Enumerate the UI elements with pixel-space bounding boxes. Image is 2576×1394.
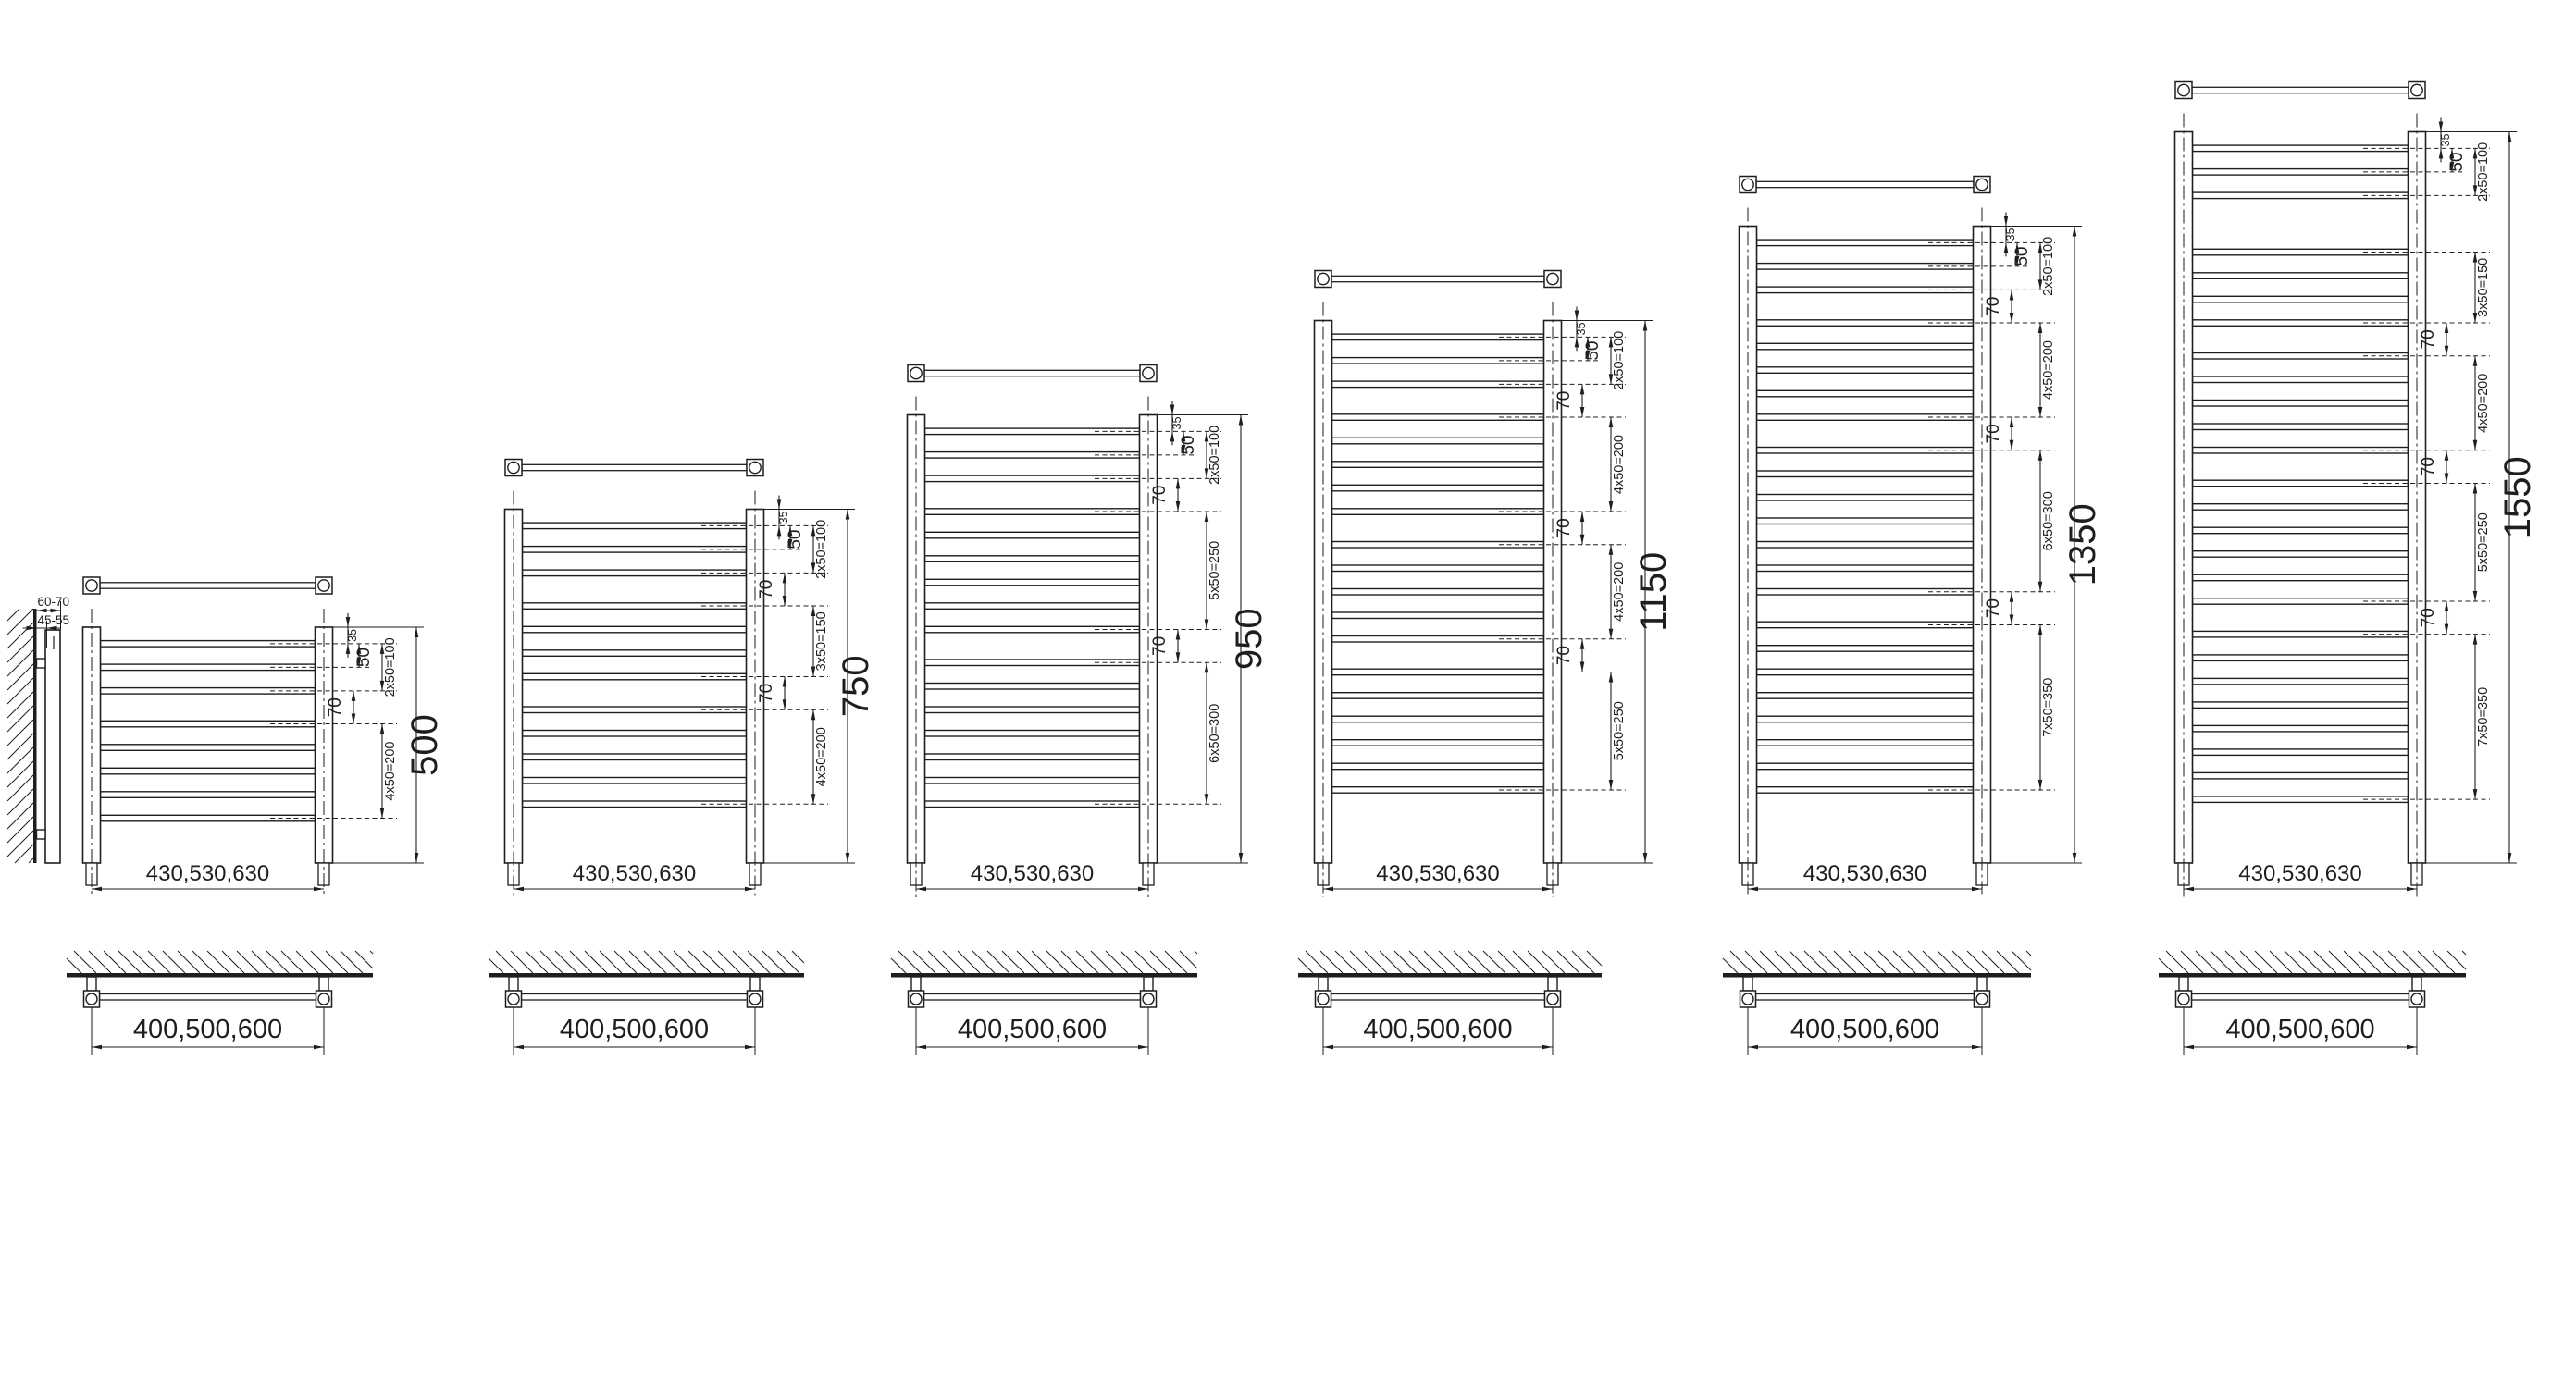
tube	[925, 660, 1140, 666]
tube	[101, 815, 316, 821]
mount-plan-view: 400,500,600	[1723, 951, 2031, 1055]
gap-dimension-label: 70	[757, 580, 776, 599]
top-offset-label: 35	[346, 629, 359, 642]
front-view	[1315, 302, 1562, 898]
tube	[2193, 424, 2409, 430]
width-dimension: 430,530,630	[2184, 861, 2417, 891]
mount-plan-view: 400,500,600	[891, 951, 1197, 1055]
front-view	[908, 397, 1158, 898]
group-dimension-label: 7x50=350	[2476, 687, 2491, 746]
pitch-label: 50	[1179, 436, 1198, 455]
gap-dimension-label: 70	[1554, 518, 1574, 537]
right-bracket-eye	[1547, 273, 1558, 284]
mount-plan-view: 400,500,600	[2159, 951, 2466, 1055]
tube	[925, 801, 1140, 808]
tube	[2193, 192, 2409, 199]
tube	[2193, 169, 2409, 176]
top-offset-label: 35	[2004, 228, 2017, 241]
top-offset-label: 35	[1170, 416, 1183, 429]
group-dimension-label: 4x50=200	[2041, 340, 2056, 400]
right-bracket-eye	[1143, 367, 1154, 378]
wall-side-view: 60-7045-55	[7, 595, 69, 863]
tube	[1757, 471, 1974, 477]
group-dimension-label: 6x50=300	[2041, 491, 2056, 550]
front-view	[2175, 114, 2426, 898]
tube	[2193, 504, 2409, 511]
tube	[523, 754, 747, 760]
wall-to-front-label: 60-70	[38, 595, 70, 609]
tube	[523, 650, 747, 657]
radiator-950: 430,530,63035502x50=100705x50=250706x50=…	[891, 365, 1269, 1055]
overall-height-label: 1350	[2062, 503, 2103, 586]
width-label: 430,530,630	[573, 861, 696, 886]
tube	[1332, 334, 1544, 340]
tube	[1332, 414, 1544, 421]
width-dimension: 430,530,630	[916, 861, 1148, 891]
mount-spacing-label: 400,500,600	[958, 1015, 1107, 1044]
group-dimension-label: 3x50=150	[2476, 258, 2491, 317]
group-dimension-label: 4x50=200	[1612, 562, 1627, 622]
tube	[2193, 320, 2409, 327]
left-bracket-eye	[1318, 273, 1329, 284]
mount-spacing-label: 400,500,600	[133, 1015, 282, 1044]
tube	[1757, 740, 1974, 746]
mount-spacing-label: 400,500,600	[1790, 1015, 1939, 1044]
tube	[1332, 509, 1544, 515]
gap-dimension-label: 70	[2419, 329, 2438, 349]
right-bracket-eye	[2411, 84, 2422, 95]
right-bracket-eye	[318, 580, 329, 591]
tube	[1757, 565, 1974, 572]
tube	[2193, 749, 2409, 756]
radiator-500: 430,530,63035502x50=100704x50=200500400,…	[67, 577, 445, 1055]
group-dimension-label: 5x50=250	[1207, 541, 1222, 600]
width-dimension: 430,530,630	[514, 861, 755, 891]
radiator-side-profile	[45, 630, 60, 863]
tube	[1332, 669, 1544, 675]
gap-dimension-label: 70	[1554, 391, 1574, 411]
tube	[1757, 716, 1974, 722]
tube	[1332, 542, 1544, 549]
tube	[1757, 542, 1974, 549]
width-label: 430,530,630	[971, 861, 1094, 886]
wall-to-rear-label: 45-55	[38, 613, 70, 627]
left-bracket-eye	[910, 367, 922, 378]
tube	[1332, 358, 1544, 364]
tube	[1757, 518, 1974, 524]
tube	[2193, 480, 2409, 487]
right-bracket-eye	[1976, 179, 1988, 190]
tube	[2193, 678, 2409, 685]
height-dimension-chain: 35502x50=100704x50=200500	[270, 613, 445, 863]
mount-plan-view: 400,500,600	[1298, 951, 1602, 1055]
tube	[101, 745, 316, 751]
group-dimension-label: 5x50=250	[1612, 701, 1627, 760]
group-dimension-label: 4x50=200	[2476, 374, 2491, 433]
radiator-1350: 430,530,63035502x50=100704x50=200706x50=…	[1723, 177, 2103, 1055]
tube	[1332, 740, 1544, 746]
group-dimension-label: 6x50=300	[1207, 704, 1222, 763]
group-dimension-label: 2x50=100	[383, 637, 398, 697]
width-label: 430,530,630	[1376, 861, 1499, 886]
mount-plan-view: 400,500,600	[67, 951, 373, 1055]
group-dimension-label: 4x50=200	[1612, 435, 1627, 494]
tube	[2193, 574, 2409, 581]
width-dimension: 430,530,630	[1323, 861, 1553, 891]
width-label: 430,530,630	[2238, 861, 2361, 886]
tube	[2193, 353, 2409, 360]
tube	[2193, 296, 2409, 302]
gap-dimension-label: 70	[2419, 608, 2438, 627]
group-dimension-label: 2x50=100	[814, 520, 829, 579]
tube	[2193, 796, 2409, 803]
tube	[2193, 376, 2409, 383]
group-dimension-label: 7x50=350	[2041, 678, 2056, 737]
top-offset-label: 35	[2439, 133, 2452, 146]
front-view	[1740, 208, 1991, 898]
tube	[1757, 367, 1974, 374]
tube	[925, 452, 1140, 459]
overall-height-label: 1150	[1633, 552, 1674, 632]
top-plan-view	[908, 365, 1157, 382]
gap-dimension-label: 70	[1150, 486, 1170, 505]
right-bracket-eye	[749, 462, 761, 473]
overall-height-label: 950	[1229, 608, 1269, 670]
tube	[1332, 462, 1544, 468]
tube	[1757, 646, 1974, 652]
tube	[101, 641, 316, 648]
tube	[1332, 787, 1544, 794]
left-bracket-eye	[1742, 179, 1753, 190]
gap-dimension-label: 70	[1150, 636, 1170, 656]
tube	[925, 475, 1140, 482]
height-dimension-chain: 35502x50=100704x50=200704x50=200705x50=2…	[1499, 307, 1674, 864]
gap-dimension-label: 70	[2419, 457, 2438, 476]
tube	[925, 509, 1140, 515]
overall-height-label: 1550	[2497, 456, 2538, 538]
tube	[2193, 273, 2409, 279]
gap-dimension-label: 70	[757, 684, 776, 703]
tube	[1757, 693, 1974, 699]
top-plan-view	[1740, 177, 1990, 193]
pitch-label: 50	[786, 530, 805, 549]
top-plan-view	[1315, 271, 1561, 288]
overall-height-label: 500	[404, 714, 445, 776]
group-dimension-label: 5x50=250	[2476, 512, 2491, 572]
radiator-1550: 430,530,63035502x50=1003x50=150704x50=20…	[2159, 82, 2538, 1055]
tube	[2193, 401, 2409, 407]
tube	[925, 778, 1140, 784]
gap-dimension-label: 70	[1984, 297, 2003, 316]
front-view	[505, 491, 764, 898]
pitch-label: 50	[354, 648, 374, 667]
top-plan-view	[2175, 82, 2425, 99]
tube	[101, 688, 316, 695]
group-dimension-label: 4x50=200	[383, 741, 398, 800]
width-label: 430,530,630	[146, 861, 269, 886]
tube	[925, 754, 1140, 760]
tube	[101, 768, 316, 774]
group-dimension-label: 2x50=100	[1207, 426, 1222, 485]
left-bracket-eye	[2178, 84, 2189, 95]
tube	[1332, 693, 1544, 699]
mount-spacing-label: 400,500,600	[560, 1015, 709, 1044]
tube	[2193, 249, 2409, 255]
tube	[1757, 669, 1974, 675]
left-bracket-eye	[86, 580, 97, 591]
top-offset-label: 35	[777, 511, 790, 524]
top-plan-view	[505, 460, 763, 476]
tube	[2193, 702, 2409, 709]
tube	[2193, 655, 2409, 661]
tube	[1332, 636, 1544, 643]
pitch-label: 50	[2012, 247, 2032, 266]
left-bracket-eye	[508, 462, 519, 473]
width-label: 430,530,630	[1803, 861, 1926, 886]
tube	[2193, 551, 2409, 558]
tube	[1332, 716, 1544, 722]
tube	[2193, 527, 2409, 534]
tube	[1757, 495, 1974, 501]
overall-height-label: 750	[836, 655, 876, 717]
tube	[1757, 343, 1974, 350]
tube	[1332, 485, 1544, 491]
mount-plan-view: 400,500,600	[489, 951, 804, 1055]
tube	[2193, 598, 2409, 605]
tube	[1332, 589, 1544, 596]
tube	[925, 428, 1140, 435]
group-dimension-label: 4x50=200	[814, 727, 829, 786]
pitch-label: 50	[1583, 341, 1603, 361]
group-dimension-label: 2x50=100	[1612, 331, 1627, 390]
tube	[1757, 763, 1974, 770]
tube	[925, 684, 1140, 690]
tube	[925, 731, 1140, 737]
front-view	[83, 609, 333, 897]
top-plan-view	[83, 577, 332, 594]
tube	[1332, 438, 1544, 444]
pitch-label: 50	[2447, 153, 2467, 172]
tube	[2193, 772, 2409, 779]
group-dimension-label: 2x50=100	[2476, 142, 2491, 202]
mount-spacing-label: 400,500,600	[2225, 1015, 2374, 1044]
tube	[2193, 725, 2409, 732]
tube	[1757, 390, 1974, 397]
radiator-1150: 430,530,63035502x50=100704x50=200704x50=…	[1298, 271, 1674, 1055]
tube	[523, 626, 747, 633]
towel-radiator-dimension-drawing: 430,530,63035502x50=100704x50=200500400,…	[0, 0, 2576, 1394]
gap-dimension-label: 70	[326, 697, 345, 717]
tube	[101, 721, 316, 727]
tube	[925, 579, 1140, 586]
tube	[101, 792, 316, 798]
mount-spacing-label: 400,500,600	[1363, 1015, 1512, 1044]
tube	[2193, 145, 2409, 152]
top-offset-label: 35	[1575, 322, 1588, 335]
width-dimension: 430,530,630	[92, 861, 324, 891]
tube	[925, 556, 1140, 562]
group-dimension-label: 3x50=150	[814, 611, 829, 671]
tube	[1332, 763, 1544, 770]
tube	[523, 731, 747, 737]
technical-drawing-page: 430,530,63035502x50=100704x50=200500400,…	[0, 0, 2576, 1394]
tube	[925, 603, 1140, 610]
gap-dimension-label: 70	[1984, 424, 2003, 443]
tube	[523, 778, 747, 784]
group-dimension-label: 2x50=100	[2041, 237, 2056, 296]
tube	[1332, 612, 1544, 619]
tube	[2193, 448, 2409, 454]
tube	[1332, 565, 1544, 572]
radiator-750: 430,530,63035502x50=100703x50=150704x50=…	[489, 460, 876, 1055]
tube	[2193, 631, 2409, 637]
tube	[101, 664, 316, 671]
tube	[925, 532, 1140, 538]
tube	[925, 707, 1140, 713]
tube	[925, 626, 1140, 633]
gap-dimension-label: 70	[1984, 598, 2003, 618]
tube	[1332, 381, 1544, 388]
width-dimension: 430,530,630	[1748, 861, 1982, 891]
gap-dimension-label: 70	[1554, 646, 1574, 665]
